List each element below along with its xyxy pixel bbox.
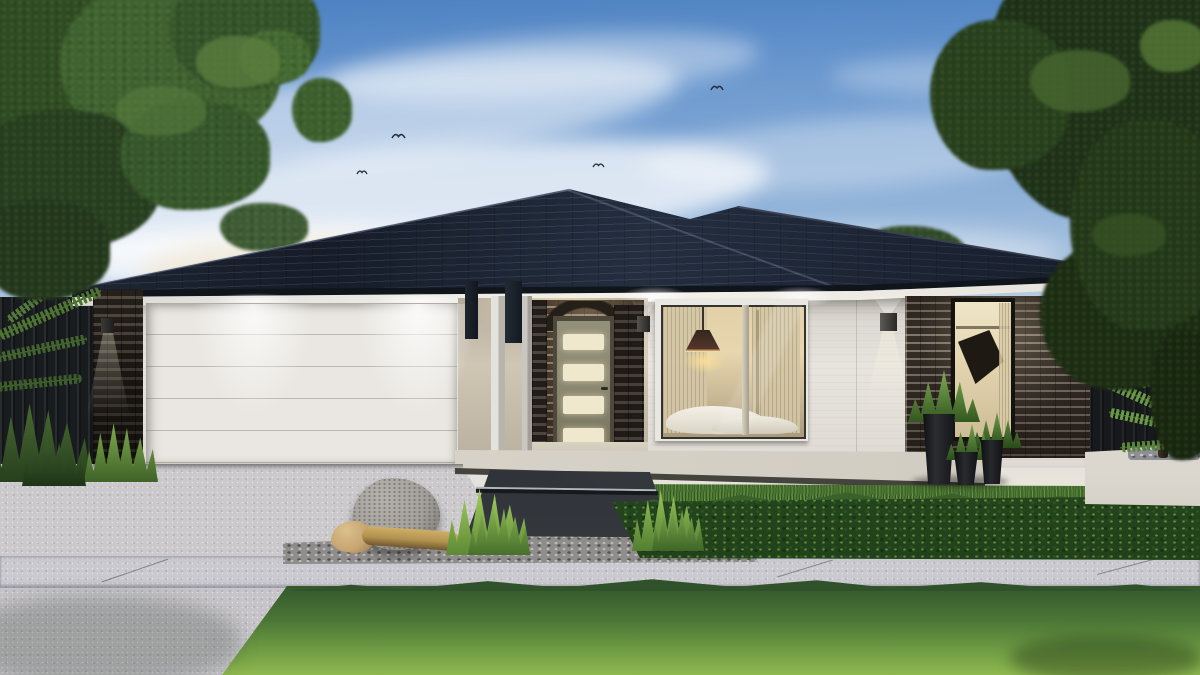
door-glass-panel bbox=[563, 334, 604, 350]
entry-brick-column bbox=[532, 300, 547, 462]
wall-sconce-icon bbox=[637, 316, 650, 332]
pier-sconce-icon bbox=[101, 318, 114, 333]
window-reflection bbox=[661, 305, 802, 435]
left-tree-highlight bbox=[116, 86, 206, 136]
left-tree-canopy bbox=[0, 200, 110, 300]
right-tree-highlight bbox=[1030, 50, 1130, 112]
door-glass-panel bbox=[563, 396, 604, 414]
porch-post bbox=[522, 296, 532, 462]
left-tree-highlight bbox=[196, 36, 280, 88]
porch-post bbox=[491, 296, 505, 462]
left-tree-branch-leaves bbox=[292, 78, 352, 142]
right-tree-highlight bbox=[1092, 214, 1166, 256]
door-glass-panel bbox=[563, 364, 604, 381]
brick-corner-highlight bbox=[905, 296, 907, 458]
tree-shadow-on-lawn bbox=[1010, 636, 1200, 675]
garage-light-wash bbox=[173, 304, 333, 466]
door-handle bbox=[601, 387, 608, 390]
house-exterior-render bbox=[0, 0, 1200, 675]
tall-window-curtain bbox=[999, 303, 1011, 436]
wall-sconce-icon bbox=[880, 313, 897, 331]
bird-icon bbox=[710, 83, 724, 92]
bird-icon bbox=[391, 131, 406, 140]
right-tree-highlight bbox=[1140, 20, 1200, 72]
window-mullion bbox=[742, 305, 749, 435]
entry-batten bbox=[465, 281, 478, 339]
bird-icon bbox=[592, 161, 605, 169]
bird-icon bbox=[356, 168, 368, 176]
wall-seam bbox=[856, 300, 857, 458]
entry-batten bbox=[505, 281, 522, 343]
